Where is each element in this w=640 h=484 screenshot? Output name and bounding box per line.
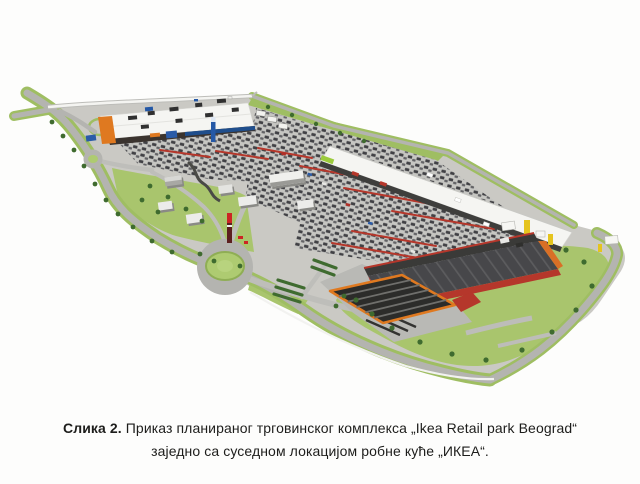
red-pylon-sign xyxy=(227,213,232,243)
roundabout-large xyxy=(197,239,253,295)
document-page: Слика 2. Приказ планираног трговинског к… xyxy=(0,0,640,484)
figure-caption: Слика 2. Приказ планираног трговинског к… xyxy=(0,417,640,463)
site-plan-figure xyxy=(0,0,640,410)
figure-label: Слика 2. xyxy=(63,420,122,436)
roof-sign-blue xyxy=(145,107,153,112)
figure-caption-line1: Слика 2. Приказ планираног трговинског к… xyxy=(0,417,640,440)
blue-pylon-sign xyxy=(211,117,216,142)
yellow-tower-1 xyxy=(524,220,530,234)
entrance-canopy xyxy=(166,130,178,138)
figure-caption-line2: заједно са суседном локацијом робне куће… xyxy=(0,440,640,463)
yellow-tower-2 xyxy=(548,234,553,245)
car-on-access-road xyxy=(194,99,198,101)
figure-caption-text1: Приказ планираног трговинског комплекса … xyxy=(126,420,577,436)
